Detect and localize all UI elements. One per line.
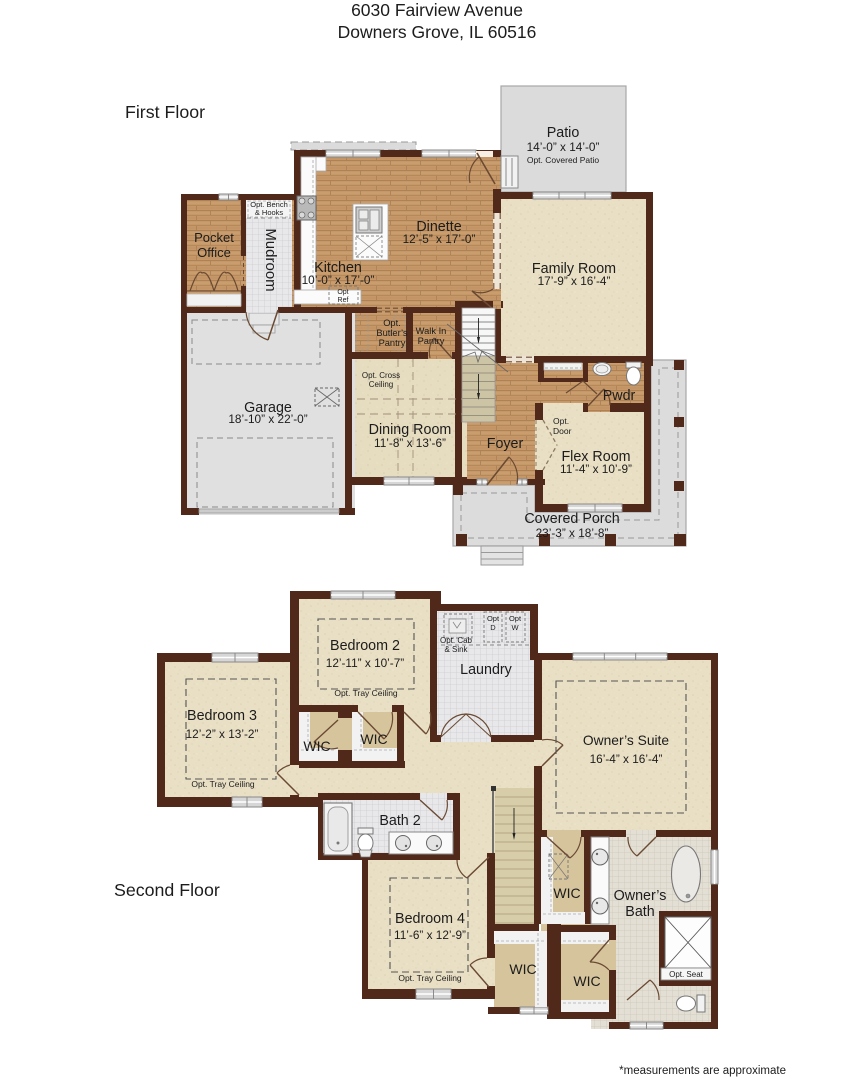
svg-text:Opt. Tray Ceiling: Opt. Tray Ceiling — [334, 688, 398, 698]
svg-text:Bath 2: Bath 2 — [379, 813, 420, 829]
svg-text:WIC: WIC — [303, 738, 330, 754]
svg-text:Ceiling: Ceiling — [369, 380, 393, 389]
svg-text:Opt.: Opt. — [553, 416, 569, 426]
svg-text:Laundry: Laundry — [460, 662, 513, 678]
svg-text:Opt. Cab: Opt. Cab — [440, 636, 473, 645]
svg-text:Opt: Opt — [509, 614, 522, 623]
svg-text:WIC: WIC — [360, 731, 387, 747]
svg-text:17’-9” x 16’-4”: 17’-9” x 16’-4” — [538, 274, 611, 288]
svg-text:Opt.: Opt. — [383, 318, 401, 328]
svg-text:Foyer: Foyer — [487, 436, 524, 452]
svg-text:Opt: Opt — [337, 289, 348, 296]
svg-text:Bedroom 3: Bedroom 3 — [187, 708, 257, 724]
svg-text:12’-5” x 17’-0”: 12’-5” x 17’-0” — [403, 232, 476, 246]
svg-text:10’-0” x 17’-0”: 10’-0” x 17’-0” — [302, 273, 375, 287]
svg-text:Second Floor: Second Floor — [114, 880, 220, 900]
svg-text:Covered Porch: Covered Porch — [524, 511, 619, 527]
svg-text:Opt. Covered Patio: Opt. Covered Patio — [527, 155, 600, 165]
svg-text:6030 Fairview Avenue: 6030 Fairview Avenue — [351, 0, 523, 20]
svg-text:Owner’s Suite: Owner’s Suite — [583, 733, 669, 748]
svg-text:Opt. Tray Ceiling: Opt. Tray Ceiling — [398, 973, 462, 983]
svg-text:16’-4” x 16’-4”: 16’-4” x 16’-4” — [590, 752, 663, 766]
svg-text:& Hooks: & Hooks — [255, 208, 284, 217]
svg-text:Opt. Seat: Opt. Seat — [669, 970, 704, 979]
svg-text:Office: Office — [197, 245, 231, 260]
svg-text:Pantry: Pantry — [379, 338, 406, 348]
svg-text:Pwdr: Pwdr — [603, 388, 636, 404]
svg-text:Butler’s: Butler’s — [376, 328, 408, 338]
svg-text:18’-10” x 22’-0”: 18’-10” x 22’-0” — [228, 412, 307, 426]
svg-text:Owner’s: Owner’s — [614, 888, 667, 904]
svg-text:Bedroom 2: Bedroom 2 — [330, 638, 400, 654]
svg-text:Pantry: Pantry — [418, 336, 445, 346]
svg-text:11’-4” x 10’-9”: 11’-4” x 10’-9” — [560, 462, 632, 476]
svg-text:WIC: WIC — [573, 973, 600, 989]
svg-text:14’-0” x 14’-0”: 14’-0” x 14’-0” — [527, 140, 600, 154]
svg-text:Bedroom 4: Bedroom 4 — [395, 911, 465, 927]
svg-text:23’-3” x 18’-8”: 23’-3” x 18’-8” — [536, 526, 609, 540]
svg-text:Patio: Patio — [547, 125, 580, 141]
svg-text:WIC: WIC — [553, 885, 580, 901]
svg-text:Walk In: Walk In — [416, 326, 447, 336]
svg-text:Ref: Ref — [338, 297, 349, 304]
svg-text:11’-8” x 13’-6”: 11’-8” x 13’-6” — [374, 436, 446, 450]
svg-text:12’-2” x 13’-2”: 12’-2” x 13’-2” — [186, 727, 259, 741]
svg-text:11’-6” x 12’-9”: 11’-6” x 12’-9” — [394, 928, 466, 942]
svg-text:& Sink: & Sink — [444, 645, 468, 654]
svg-text:Door: Door — [553, 426, 572, 436]
svg-text:Opt. Tray Ceiling: Opt. Tray Ceiling — [191, 779, 255, 789]
svg-text:Opt. Cross: Opt. Cross — [362, 371, 400, 380]
svg-text:Downers Grove, IL 60516: Downers Grove, IL 60516 — [338, 22, 537, 42]
svg-text:WIC: WIC — [509, 961, 536, 977]
svg-text:First Floor: First Floor — [125, 102, 205, 122]
svg-text:D: D — [490, 623, 496, 632]
svg-text:Bath: Bath — [625, 904, 654, 920]
svg-text:Mudroom: Mudroom — [262, 228, 279, 291]
svg-text:12’-11” x 10’-7”: 12’-11” x 10’-7” — [326, 656, 405, 670]
svg-text:Pocket: Pocket — [194, 230, 234, 245]
svg-text:*measurements are approximate: *measurements are approximate — [619, 1065, 786, 1077]
svg-text:W: W — [511, 623, 519, 632]
svg-text:Opt: Opt — [487, 614, 500, 623]
